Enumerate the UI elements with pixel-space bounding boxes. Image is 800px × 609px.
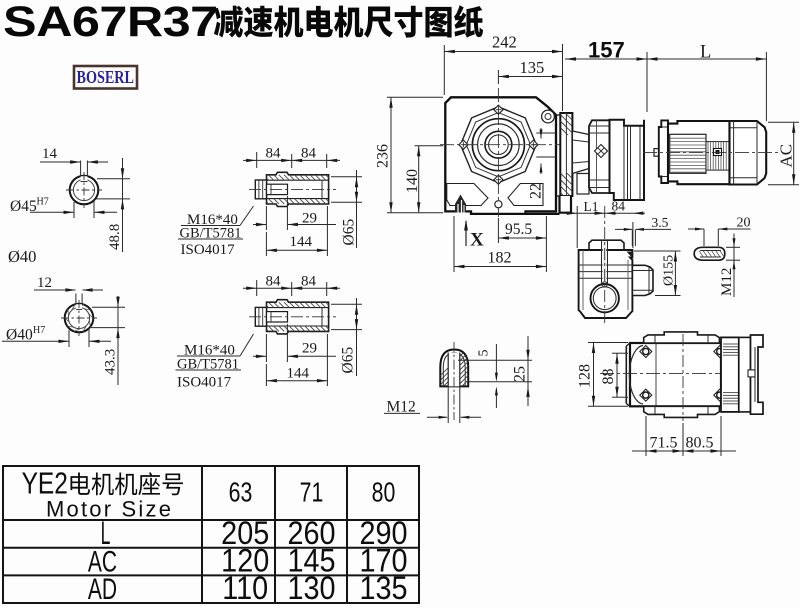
svg-text:20: 20	[737, 216, 751, 231]
svg-text:YE2: YE2	[22, 466, 68, 500]
svg-text:157: 157	[588, 38, 625, 63]
svg-text:84: 84	[301, 146, 317, 162]
svg-text:236: 236	[375, 144, 392, 168]
svg-text:43.3: 43.3	[103, 349, 119, 375]
svg-text:63: 63	[229, 477, 253, 509]
svg-text:SA67R37: SA67R37	[3, 0, 218, 45]
svg-text:AC: AC	[777, 144, 796, 168]
svg-text:95.5: 95.5	[505, 221, 532, 238]
svg-text:84: 84	[612, 199, 626, 214]
svg-text:135: 135	[520, 58, 545, 77]
svg-text:X: X	[470, 230, 484, 251]
svg-text:29: 29	[302, 210, 317, 226]
svg-text:130: 130	[287, 571, 335, 607]
svg-text:242: 242	[492, 33, 517, 52]
svg-text:25: 25	[512, 366, 529, 382]
svg-text:71.5: 71.5	[650, 435, 678, 452]
svg-text:140: 140	[404, 169, 421, 193]
svg-text:H7: H7	[37, 197, 49, 208]
svg-text:48.8: 48.8	[107, 224, 123, 250]
svg-text:80: 80	[372, 477, 396, 509]
svg-text:5: 5	[477, 350, 492, 357]
svg-text:144: 144	[290, 234, 313, 250]
svg-text:71: 71	[300, 477, 324, 509]
svg-text:Ø65: Ø65	[341, 219, 358, 246]
svg-text:84: 84	[266, 146, 282, 162]
svg-text:88: 88	[600, 369, 617, 385]
svg-text:29: 29	[302, 340, 317, 356]
svg-text:M12: M12	[719, 268, 735, 296]
svg-text:Ø65: Ø65	[340, 347, 357, 374]
svg-text:144: 144	[287, 366, 310, 382]
svg-text:12: 12	[37, 275, 52, 291]
svg-text:BOSERL: BOSERL	[77, 67, 135, 87]
svg-text:110: 110	[222, 571, 268, 607]
svg-text:Ø45: Ø45	[10, 198, 37, 215]
svg-text:84: 84	[301, 273, 317, 289]
svg-text:H7: H7	[33, 325, 45, 336]
svg-text:3.5: 3.5	[652, 215, 669, 230]
svg-text:128: 128	[577, 364, 594, 388]
svg-text:14: 14	[42, 146, 58, 162]
svg-text:Ø40: Ø40	[6, 327, 33, 344]
svg-text:L1: L1	[584, 199, 599, 214]
svg-text:L: L	[700, 43, 711, 63]
svg-text:Ø155: Ø155	[662, 255, 677, 286]
svg-text:80.5: 80.5	[686, 435, 714, 452]
svg-text:84: 84	[266, 273, 282, 289]
svg-text:135: 135	[359, 571, 407, 607]
svg-text:Ø40: Ø40	[8, 247, 36, 266]
svg-text:ISO4017: ISO4017	[181, 242, 236, 258]
svg-text:182: 182	[488, 250, 512, 267]
svg-text:AD: AD	[88, 574, 117, 606]
svg-text:ISO4017: ISO4017	[177, 375, 232, 391]
svg-text:22: 22	[528, 183, 545, 199]
